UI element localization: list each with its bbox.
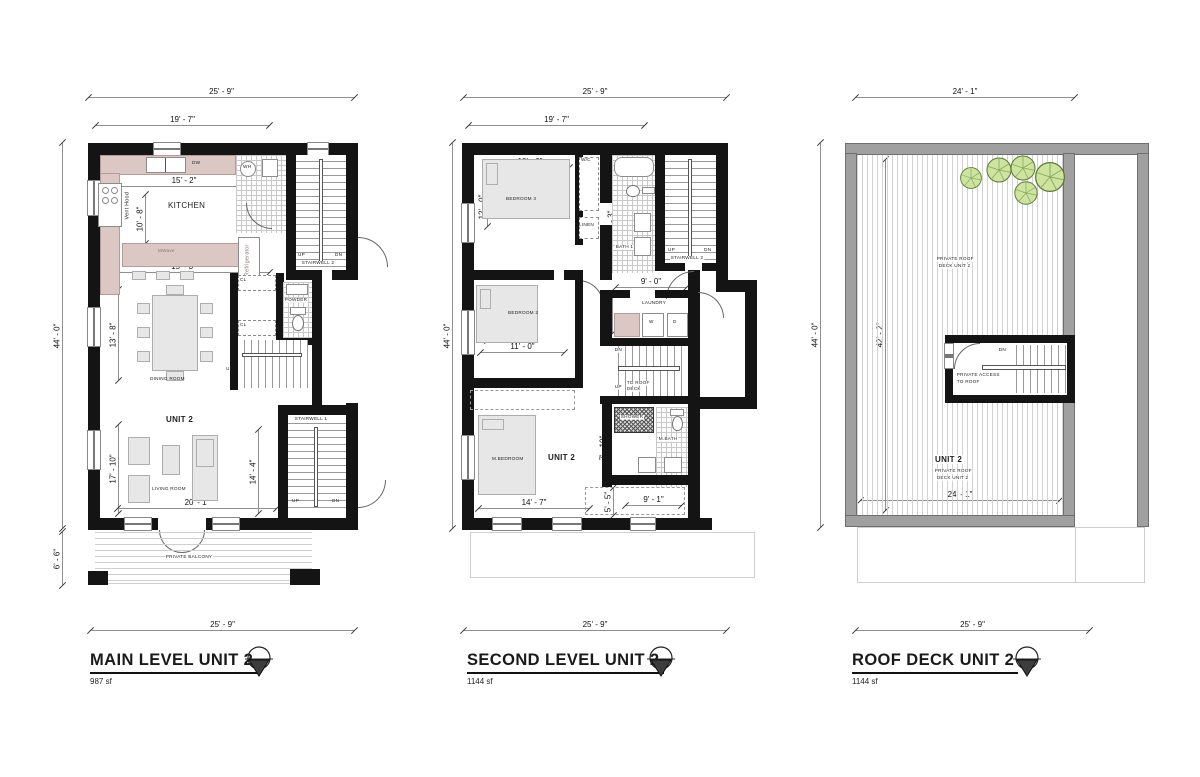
dim-label: 44' - 0" (443, 323, 452, 348)
dim-label: 9' - 0" (641, 277, 661, 286)
chair (137, 327, 150, 338)
roof-access-label-1: PRIVATE ACCESS (956, 373, 1000, 378)
parapet-wall (845, 143, 1149, 155)
armchair (128, 475, 150, 503)
entry-door-arc (358, 237, 388, 267)
up-label: UP (668, 248, 675, 253)
vanity-sink (634, 237, 651, 256)
deck-note-line2: DECK UNIT 2 (936, 476, 969, 481)
laundry-counter (614, 313, 640, 337)
stair-rail (982, 365, 1066, 370)
parapet-wall (1137, 153, 1149, 527)
dn-label: DN (614, 348, 623, 353)
wall (462, 270, 554, 280)
dryer (667, 313, 688, 337)
mbedroom-label: M.BEDROOM (492, 457, 523, 462)
dim-label: 25' - 9" (960, 620, 985, 629)
up-label: UP (226, 367, 233, 372)
pillow (482, 419, 504, 430)
laundry-label: LAUNDRY (642, 301, 666, 306)
toilet-tank (642, 187, 655, 194)
dim-roof-top: 24' - 1" (855, 97, 1075, 98)
wall (575, 280, 583, 378)
roof-outline (470, 532, 755, 578)
window (87, 430, 101, 470)
roof-deck-area: 1144 sf (852, 677, 878, 686)
roof-access-door (944, 343, 954, 369)
up-label: UP (614, 385, 623, 390)
to-roof-label-2: DECK (626, 387, 642, 392)
equipment-box (262, 159, 278, 177)
bedroom2-label: BEDROOM 2 (508, 311, 538, 316)
toilet-bowl (626, 185, 640, 197)
dim-label: 19' - 7" (544, 115, 569, 124)
coffee-table (162, 445, 180, 475)
wall (745, 292, 757, 409)
wall (346, 143, 358, 280)
pillow (486, 163, 498, 185)
main-level-area: 987 sf (90, 677, 112, 686)
linen-label: LINEN (579, 223, 594, 228)
window (307, 142, 329, 156)
door-arc (698, 292, 724, 318)
tree-icon (1012, 179, 1040, 207)
roof-stairs (612, 346, 688, 396)
dim-main-top-inner: 19' - 7" (95, 125, 270, 126)
wall (600, 298, 612, 343)
chair (200, 327, 213, 338)
interior-stairs (238, 340, 308, 388)
chair (166, 285, 184, 295)
dim-label: 44' - 0" (53, 323, 62, 348)
chair (200, 351, 213, 362)
burner (102, 197, 109, 204)
up-label: UP (298, 253, 305, 258)
wall (945, 395, 1075, 403)
roof-outline (857, 527, 1145, 583)
wall (462, 378, 583, 388)
burner (111, 187, 118, 194)
wall (602, 475, 700, 485)
roof-deck-title: ROOF DECK UNIT 2 (852, 651, 1018, 674)
dn-label: DN (998, 348, 1007, 353)
shower-label: SHOWER (620, 415, 644, 420)
dim-stair1-height: 14' - 4" (258, 430, 259, 513)
dim-laundry-height: 7' - 6" (612, 298, 613, 333)
window (552, 517, 582, 531)
sink-divider (165, 158, 166, 172)
water-heater-label: WH (243, 165, 251, 170)
dim-bedroom2-width: 11' - 0" (480, 352, 565, 353)
wall (290, 569, 320, 585)
parapet-wall (845, 515, 1075, 527)
mbath-label: M.BATH (658, 437, 678, 442)
microwave-label: MWave (158, 249, 175, 254)
roof-outline-divider (1075, 527, 1076, 583)
window (461, 435, 475, 480)
window (87, 307, 101, 347)
burner (102, 187, 109, 194)
wall (698, 397, 757, 409)
private-balcony-label: PRIVATE BALCONY (165, 555, 213, 560)
north-arrow-icon (1012, 645, 1042, 679)
sofa-cushion (196, 439, 214, 467)
dn-label: DN (335, 253, 342, 258)
dim-label: 24' - 1" (953, 87, 978, 96)
window (153, 142, 181, 156)
up-label: UP (292, 499, 299, 504)
dim-second-top: 25' - 9" (463, 97, 727, 98)
window (492, 517, 522, 531)
deck-note-line1: PRIVATE ROOF (936, 257, 975, 262)
dim-main-balcony-left: 6' - 6" (62, 532, 63, 585)
dim-label: 14' - 4" (249, 459, 258, 484)
wall (1067, 335, 1075, 403)
balcony-edge (95, 580, 312, 584)
dim-label: 19' - 7" (170, 115, 195, 124)
dim-label: 44' - 0" (811, 323, 820, 348)
powder-sink (286, 284, 308, 295)
wall (600, 225, 612, 280)
stair-rail (242, 353, 302, 357)
kitchen-sink (146, 157, 186, 173)
toilet-tank (670, 409, 684, 416)
wall (286, 270, 314, 280)
vanity-sink (634, 213, 651, 232)
toilet-tank (290, 307, 306, 315)
wall (286, 155, 296, 280)
dim-label: 14' - 7" (522, 498, 547, 507)
tree-icon (958, 165, 984, 191)
dryer-label: D (673, 320, 677, 325)
bath1-label: BATH 1 (615, 245, 634, 250)
dim-living-height: 17' - 10" (118, 425, 119, 513)
wall (564, 270, 583, 280)
dim-second-top-inner: 19' - 7" (468, 125, 645, 126)
armchair (128, 437, 150, 465)
shower (614, 407, 654, 433)
dim-label: 15' - 2" (172, 176, 197, 185)
toilet-bowl (672, 416, 683, 431)
vanity-sink (664, 457, 682, 473)
dim-roof-bottom: 25' - 9" (855, 630, 1090, 631)
dn-label: DN (704, 248, 711, 253)
wall (600, 290, 630, 298)
bedroom3-label: BEDROOM 3 (506, 197, 536, 202)
window (124, 517, 152, 531)
stool (132, 271, 146, 280)
dim-roof-left: 44' - 0" (820, 143, 821, 527)
chair (137, 351, 150, 362)
wall (278, 405, 288, 523)
wall (230, 273, 238, 337)
wall (655, 290, 688, 298)
washer (642, 313, 664, 337)
wall (655, 155, 665, 270)
closet-label: CL (240, 278, 246, 283)
wall (655, 263, 685, 271)
roof-access-label-2: TO ROOF (956, 380, 980, 385)
stool (180, 271, 194, 280)
stair-door-arc (358, 480, 386, 508)
bathtub (614, 157, 654, 177)
main-level-plan: 25' - 9" 19' - 7" 44' - 0" 6' - 6" 15' -… (40, 85, 400, 705)
dishwasher-label: DW (192, 161, 200, 166)
wall (702, 263, 728, 271)
second-level-area: 1144 sf (467, 677, 493, 686)
wall (88, 571, 108, 585)
wall (600, 155, 612, 203)
parapet-wall (845, 153, 857, 527)
kitchen-island (122, 243, 240, 267)
chair (137, 303, 150, 314)
stairwell2-label: STAIRWELL 2 (670, 256, 704, 261)
dim-label: 6' - 6" (53, 548, 62, 568)
unit-label: UNIT 2 (548, 453, 575, 462)
stair-rail (618, 366, 680, 371)
washer-label: W (649, 320, 654, 325)
second-level-plan: 25' - 9" 19' - 7" 44' - 0" 10' - 6" 12' … (430, 85, 775, 705)
closet-dashed (585, 487, 685, 515)
dim-kitchen-height: 10' - 8" (145, 195, 146, 243)
dim-label: 10' - 8" (136, 207, 145, 232)
stool (156, 271, 170, 280)
closet-dashed (470, 390, 575, 410)
dim-label: 25' - 9" (583, 620, 608, 629)
deck-note-line2: DECK UNIT 2 (938, 264, 971, 269)
dim-main-top: 25' - 9" (88, 97, 355, 98)
wall (716, 280, 757, 292)
refrigerator-label: Refrigerator (245, 244, 250, 276)
window (630, 517, 656, 531)
wall (230, 337, 238, 390)
closet-label: CL (240, 323, 246, 328)
pillow (480, 289, 491, 309)
dim-label: 17' - 10" (109, 454, 118, 483)
window (461, 310, 475, 355)
living-room-label: LIVING ROOM (152, 487, 186, 492)
deck-note-line1: PRIVATE ROOF (934, 469, 973, 474)
to-roof-label-1: TO ROOF (626, 381, 650, 386)
burner (111, 197, 118, 204)
dining-room-label: DINING ROOM (150, 377, 185, 382)
north-arrow-icon (244, 645, 274, 679)
toilet-bowl (292, 315, 304, 331)
dim-main-left: 44' - 0" (62, 143, 63, 528)
linen-closet (579, 217, 599, 239)
wc-label: W/C (581, 158, 591, 163)
stair-rail (688, 159, 692, 257)
wc-closet (579, 157, 599, 211)
powder-label: POWDER (284, 298, 308, 303)
stairwell1-label: STAIRWELL 1 (294, 417, 328, 422)
floor-plan-sheet: 25' - 9" 19' - 7" 44' - 0" 6' - 6" 15' -… (0, 0, 1200, 777)
stair-rail (314, 427, 318, 507)
window (461, 203, 475, 243)
dim-second-left: 44' - 0" (452, 143, 453, 528)
window (212, 517, 240, 531)
kitchen-label: KITCHEN (168, 201, 205, 210)
dim-living-width: 20' - 1" (117, 508, 277, 509)
north-arrow-icon (646, 645, 676, 679)
dining-table (152, 295, 198, 371)
dim-second-bottom: 25' - 9" (463, 630, 727, 631)
chair (200, 303, 213, 314)
wall (346, 403, 358, 530)
stair-rail (319, 159, 323, 263)
wall (945, 335, 1075, 343)
vanity-sink (638, 457, 656, 473)
dim-main-bottom: 25' - 9" (90, 630, 355, 631)
wall (600, 338, 688, 346)
wall (600, 396, 688, 404)
second-level-title: SECOND LEVEL UNIT 2 (467, 651, 664, 674)
dim-label: 25' - 9" (209, 87, 234, 96)
unit-label: UNIT 2 (166, 415, 193, 424)
dim-dining-height: 13' - 8" (118, 290, 119, 380)
wall (332, 270, 358, 280)
roof-deck-plan: 24' - 1" 44' - 0" 42' - 2" 24' - 1" 25' … (810, 85, 1195, 705)
main-level-title: MAIN LEVEL UNIT 2 (90, 651, 257, 674)
wall (278, 405, 358, 415)
stairwell2-label: STAIRWELL 2 (301, 261, 335, 266)
dim-label: 13' - 8" (109, 323, 118, 348)
dim-label: 11' - 0" (510, 342, 534, 351)
wall (462, 143, 728, 155)
dim-label: 25' - 9" (583, 87, 608, 96)
dn-label: DN (332, 499, 339, 504)
dim-label: 25' - 9" (210, 620, 235, 629)
dim-bottom-left: 14' - 7" (478, 508, 590, 509)
unit-label: UNIT 2 (934, 455, 963, 464)
vent-hood-label: Vent Hood (125, 192, 130, 220)
